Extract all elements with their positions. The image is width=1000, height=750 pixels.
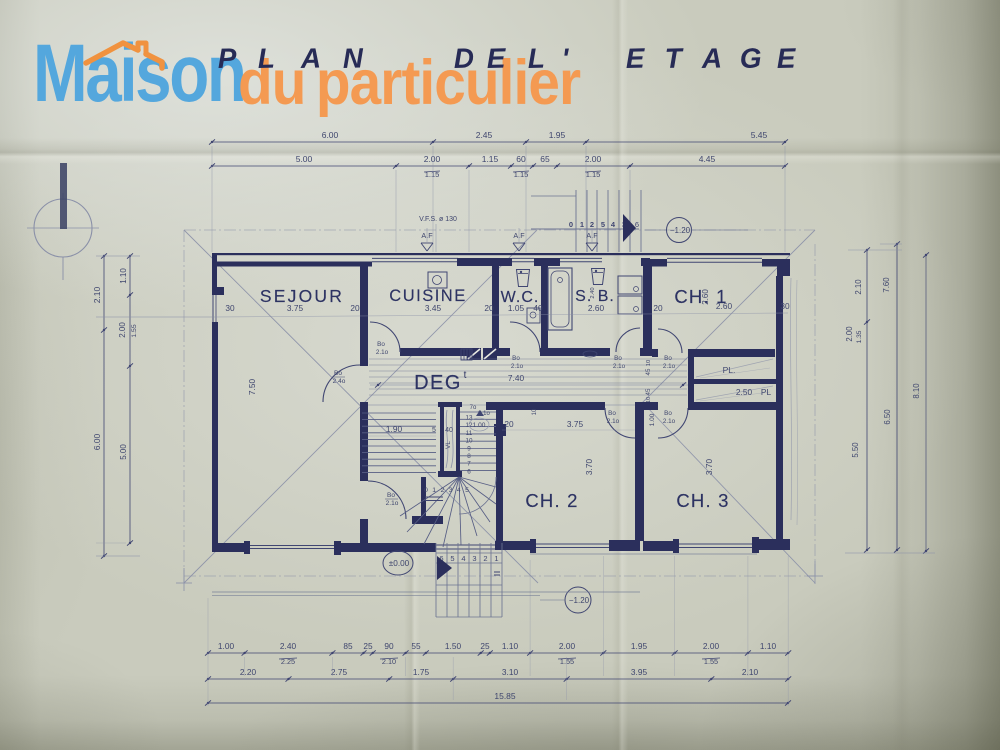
svg-text:10: 10	[646, 360, 652, 366]
svg-text:P: P	[217, 43, 237, 74]
svg-text:2.60: 2.60	[701, 289, 710, 305]
svg-text:45: 45	[645, 388, 652, 395]
svg-text:2: 2	[441, 487, 445, 494]
svg-text:0: 0	[424, 487, 428, 494]
svg-text:30: 30	[225, 303, 235, 313]
svg-text:5: 5	[601, 220, 605, 229]
svg-text:2.1o: 2.1o	[478, 411, 490, 417]
svg-text:25: 25	[480, 641, 490, 651]
svg-text:8: 8	[467, 453, 471, 460]
svg-text:20: 20	[350, 303, 360, 313]
svg-text:DEG: DEG	[414, 372, 462, 394]
svg-text:1.10: 1.10	[502, 641, 519, 651]
svg-text:2.75: 2.75	[331, 667, 348, 677]
svg-text:N: N	[342, 42, 364, 74]
svg-text:1: 1	[580, 220, 584, 229]
svg-text:1.55: 1.55	[131, 324, 138, 337]
svg-text:20: 20	[504, 419, 514, 429]
svg-text:−1.20: −1.20	[670, 226, 691, 235]
svg-text:5.00: 5.00	[119, 444, 128, 460]
svg-text:3.95: 3.95	[631, 667, 648, 677]
svg-text:E: E	[776, 42, 797, 74]
svg-text:2.45: 2.45	[476, 130, 493, 140]
svg-text:5: 5	[465, 487, 469, 494]
svg-text:90: 90	[384, 641, 394, 651]
svg-text:65: 65	[540, 154, 550, 164]
svg-text:2.00: 2.00	[703, 641, 720, 651]
svg-text:2.10: 2.10	[854, 279, 863, 295]
svg-text:1.15: 1.15	[482, 154, 499, 164]
svg-text:L: L	[257, 43, 275, 74]
svg-text:25: 25	[363, 641, 373, 651]
svg-text:Bo: Bo	[387, 492, 395, 499]
svg-text:4.45: 4.45	[699, 154, 716, 164]
svg-text:40: 40	[445, 427, 453, 434]
svg-text:−1.20: −1.20	[569, 596, 590, 605]
svg-text:3.75: 3.75	[287, 303, 304, 313]
svg-text:7.60: 7.60	[882, 277, 891, 293]
svg-text:7: 7	[467, 461, 471, 468]
svg-text:1: 1	[494, 554, 498, 563]
svg-text:55: 55	[411, 641, 421, 651]
svg-text:1.90: 1.90	[386, 424, 403, 434]
svg-text:3: 3	[472, 554, 476, 563]
svg-text:2.1o: 2.1o	[613, 363, 626, 370]
svg-text:0: 0	[569, 220, 573, 229]
svg-text:t: t	[464, 370, 467, 381]
svg-text:85: 85	[343, 641, 353, 651]
svg-text:3.45: 3.45	[425, 303, 442, 313]
svg-text:6.50: 6.50	[883, 409, 892, 425]
svg-text:1.05: 1.05	[508, 303, 525, 313]
svg-text:D: D	[453, 42, 474, 74]
svg-text:Bo: Bo	[608, 410, 616, 417]
svg-text:5.45: 5.45	[751, 130, 768, 140]
svg-text:V.F.S. ø 130: V.F.S. ø 130	[419, 216, 457, 223]
svg-text:1.00: 1.00	[218, 641, 235, 651]
svg-text:1: 1	[432, 487, 436, 494]
svg-text:1.95: 1.95	[549, 130, 566, 140]
svg-text:15.85: 15.85	[494, 691, 516, 701]
svg-text:PL: PL	[761, 387, 772, 397]
svg-text:3.70: 3.70	[704, 459, 714, 476]
svg-text:L: L	[527, 43, 545, 74]
svg-text:2.1o: 2.1o	[386, 500, 399, 507]
svg-text:7.50: 7.50	[247, 379, 257, 396]
svg-text:Bo: Bo	[614, 355, 622, 362]
svg-text:±0.00: ±0.00	[389, 559, 410, 568]
svg-text:3.75: 3.75	[567, 419, 584, 429]
svg-text:1.50: 1.50	[445, 641, 462, 651]
svg-text:2.00: 2.00	[424, 154, 441, 164]
svg-text:5.50: 5.50	[851, 442, 860, 458]
svg-text:2.00: 2.00	[118, 322, 127, 338]
svg-text:VL: VL	[445, 441, 452, 449]
svg-text:13: 13	[465, 415, 473, 422]
svg-text:6: 6	[467, 468, 471, 475]
svg-text:2.00: 2.00	[845, 326, 854, 342]
svg-text:E: E	[625, 42, 646, 74]
svg-text:E: E	[486, 42, 507, 74]
svg-text:5: 5	[450, 554, 454, 563]
svg-text:2.50: 2.50	[736, 387, 753, 397]
svg-text:2.4o: 2.4o	[333, 378, 346, 385]
svg-text:9: 9	[467, 445, 471, 452]
svg-text:2.1o: 2.1o	[607, 418, 620, 425]
svg-text:G: G	[739, 42, 762, 74]
svg-text:4: 4	[461, 554, 465, 563]
svg-text:10: 10	[532, 408, 538, 415]
svg-text:7.40: 7.40	[508, 373, 525, 383]
svg-text:7o: 7o	[470, 405, 477, 411]
svg-text:2.1o: 2.1o	[376, 349, 389, 356]
svg-text:CH. 2: CH. 2	[525, 490, 578, 511]
svg-text:2.40: 2.40	[280, 641, 297, 651]
svg-text:1.00: 1.00	[473, 422, 486, 429]
svg-text:8.10: 8.10	[912, 383, 921, 399]
svg-text:3.70: 3.70	[584, 459, 594, 476]
svg-text:T: T	[664, 42, 685, 74]
svg-text:2.1o: 2.1o	[663, 363, 676, 370]
svg-text:Bo: Bo	[664, 410, 672, 417]
svg-text:2.00: 2.00	[585, 154, 602, 164]
svg-text:2.10: 2.10	[742, 667, 759, 677]
svg-text:6.00: 6.00	[92, 433, 102, 450]
svg-text:5: 5	[432, 427, 436, 434]
svg-text:60: 60	[516, 154, 526, 164]
svg-text:A: A	[299, 42, 321, 74]
svg-text:2.20: 2.20	[240, 667, 257, 677]
svg-text:2.60: 2.60	[588, 303, 605, 313]
svg-text:4: 4	[611, 220, 616, 229]
svg-text:2.1o: 2.1o	[663, 418, 676, 425]
svg-text:1.00: 1.00	[649, 413, 656, 426]
svg-text:20: 20	[653, 303, 663, 313]
svg-text:40: 40	[533, 303, 543, 313]
svg-text:2.60: 2.60	[716, 301, 733, 311]
svg-text:Bo: Bo	[512, 355, 520, 362]
svg-text:': '	[561, 43, 570, 74]
svg-text:5.00: 5.00	[296, 154, 313, 164]
svg-text:Bo: Bo	[664, 355, 672, 362]
svg-text:30: 30	[780, 301, 790, 311]
svg-text:3.10: 3.10	[502, 667, 519, 677]
svg-text:2: 2	[483, 554, 487, 563]
svg-text:Bo: Bo	[377, 341, 385, 348]
svg-text:2.10: 2.10	[92, 286, 102, 303]
svg-text:1.35: 1.35	[856, 330, 863, 343]
svg-text:11: 11	[466, 430, 473, 437]
svg-text:PL.: PL.	[723, 365, 736, 375]
svg-text:2.00: 2.00	[559, 641, 576, 651]
svg-text:1.95: 1.95	[631, 641, 648, 651]
svg-text:2: 2	[590, 220, 594, 229]
svg-text:2.1o: 2.1o	[511, 363, 524, 370]
svg-text:45: 45	[645, 368, 652, 375]
svg-text:1.10: 1.10	[119, 268, 128, 284]
svg-text:CH. 3: CH. 3	[676, 490, 729, 511]
svg-text:3: 3	[449, 487, 453, 494]
svg-text:10: 10	[465, 438, 473, 445]
svg-text:A: A	[700, 42, 722, 74]
svg-text:Bo: Bo	[334, 370, 342, 377]
svg-text:1.75: 1.75	[413, 667, 430, 677]
svg-text:4: 4	[457, 487, 461, 494]
svg-text:6.00: 6.00	[322, 130, 339, 140]
svg-text:1.10: 1.10	[760, 641, 777, 651]
svg-text:20: 20	[484, 303, 494, 313]
